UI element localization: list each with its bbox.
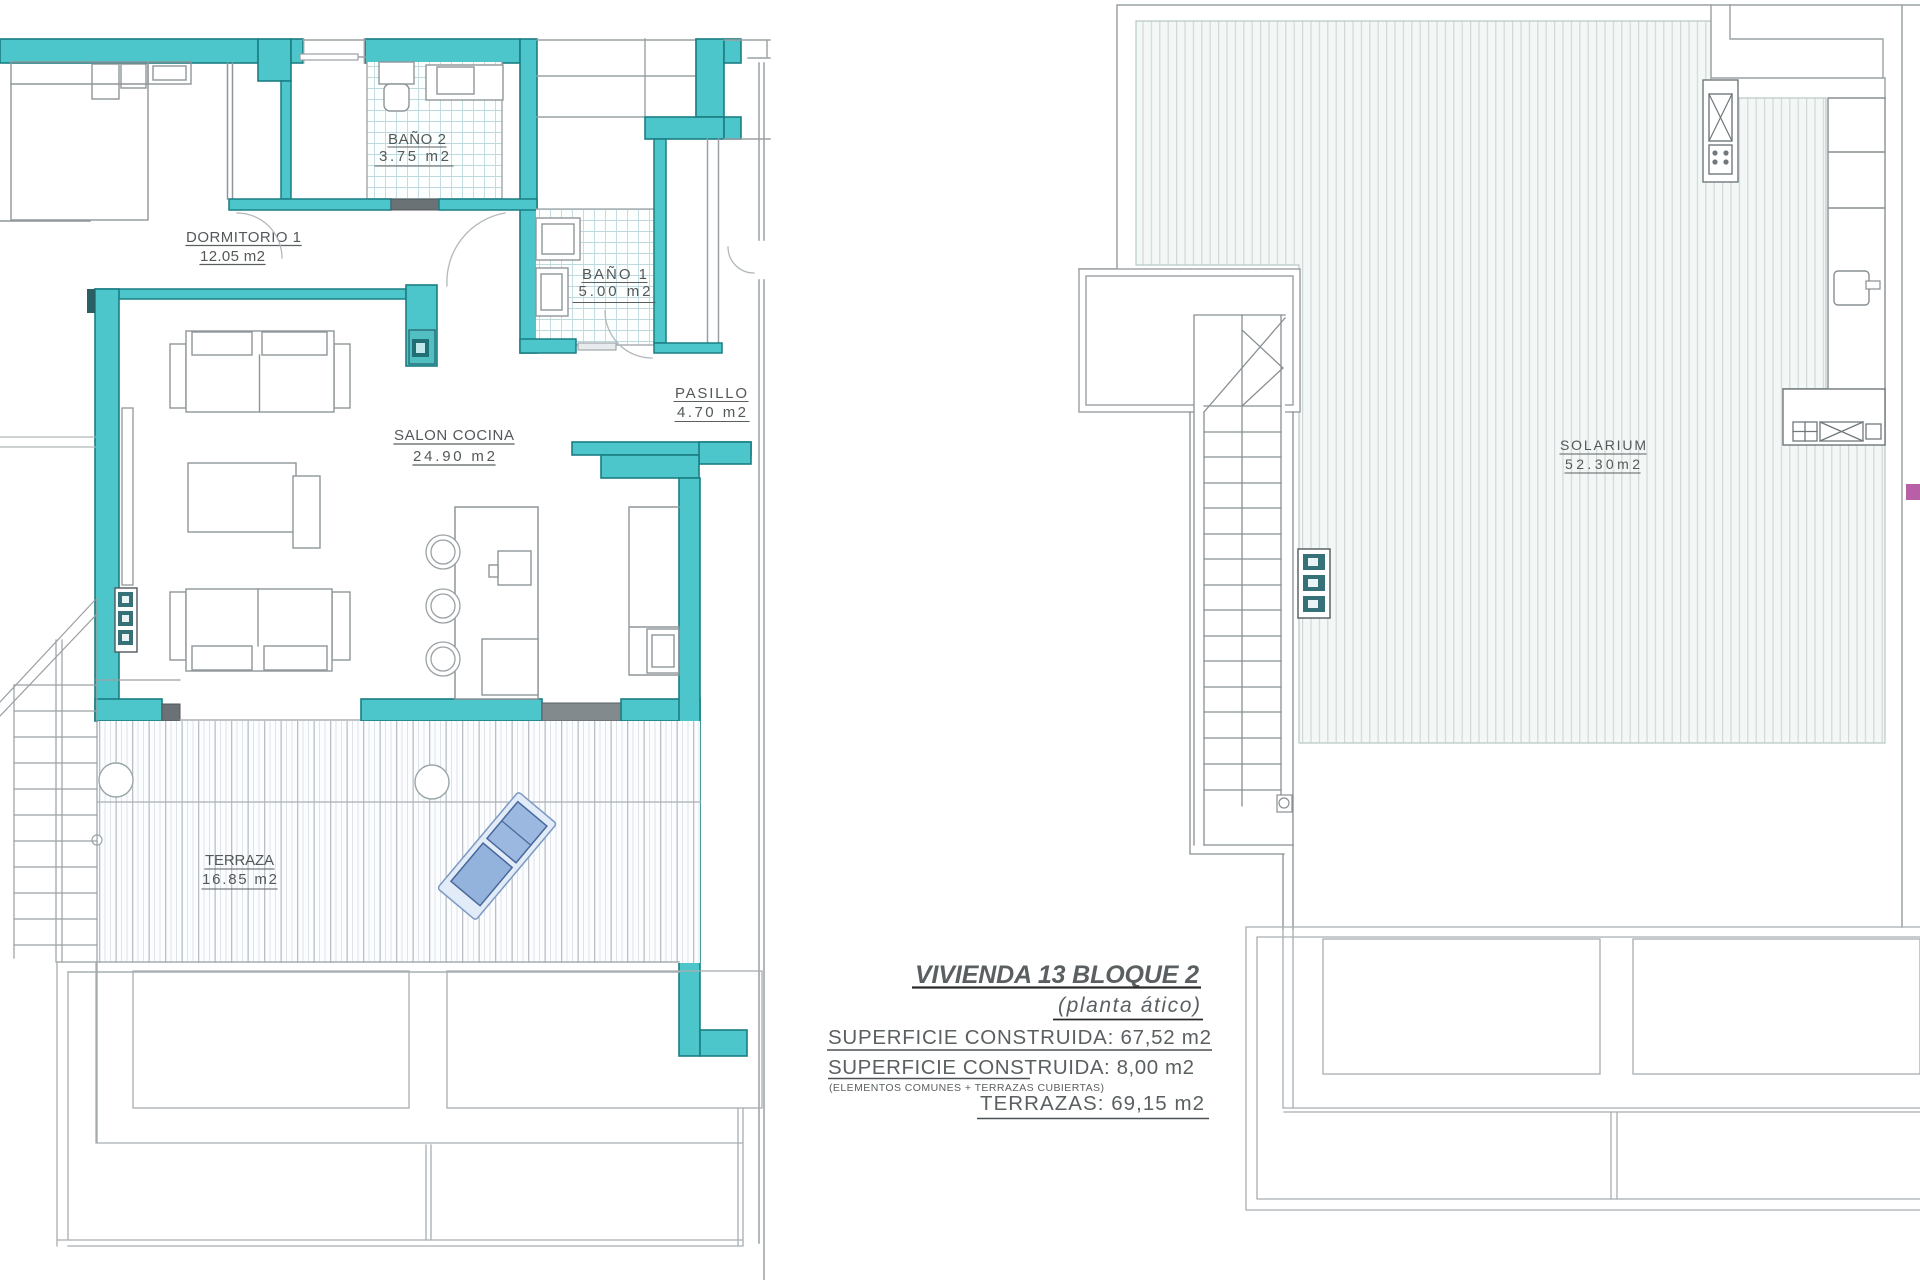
svg-text:16.85 m2: 16.85 m2	[202, 871, 277, 888]
svg-text:BAÑO 2: BAÑO 2	[388, 131, 446, 148]
svg-text:TERRAZA: TERRAZA	[205, 852, 274, 869]
svg-text:24.90 m2: 24.90 m2	[413, 448, 495, 465]
svg-text:PASILLO: PASILLO	[675, 385, 747, 402]
svg-text:SALON COCINA: SALON COCINA	[394, 427, 514, 444]
svg-text:12.05 m2: 12.05 m2	[200, 248, 265, 265]
svg-text:DORMITORIO 1: DORMITORIO 1	[186, 229, 301, 246]
svg-text:SUPERFICIE CONSTRUIDA: 8,00 m2: SUPERFICIE CONSTRUIDA: 8,00 m2	[828, 1056, 1194, 1079]
svg-text:VIVIENDA 13 BLOQUE 2: VIVIENDA 13 BLOQUE 2	[915, 961, 1199, 989]
svg-text:SUPERFICIE CONSTRUIDA: 67,52 m: SUPERFICIE CONSTRUIDA: 67,52 m2	[828, 1026, 1211, 1049]
svg-text:TERRAZAS: 69,15 m2: TERRAZAS: 69,15 m2	[980, 1092, 1204, 1115]
